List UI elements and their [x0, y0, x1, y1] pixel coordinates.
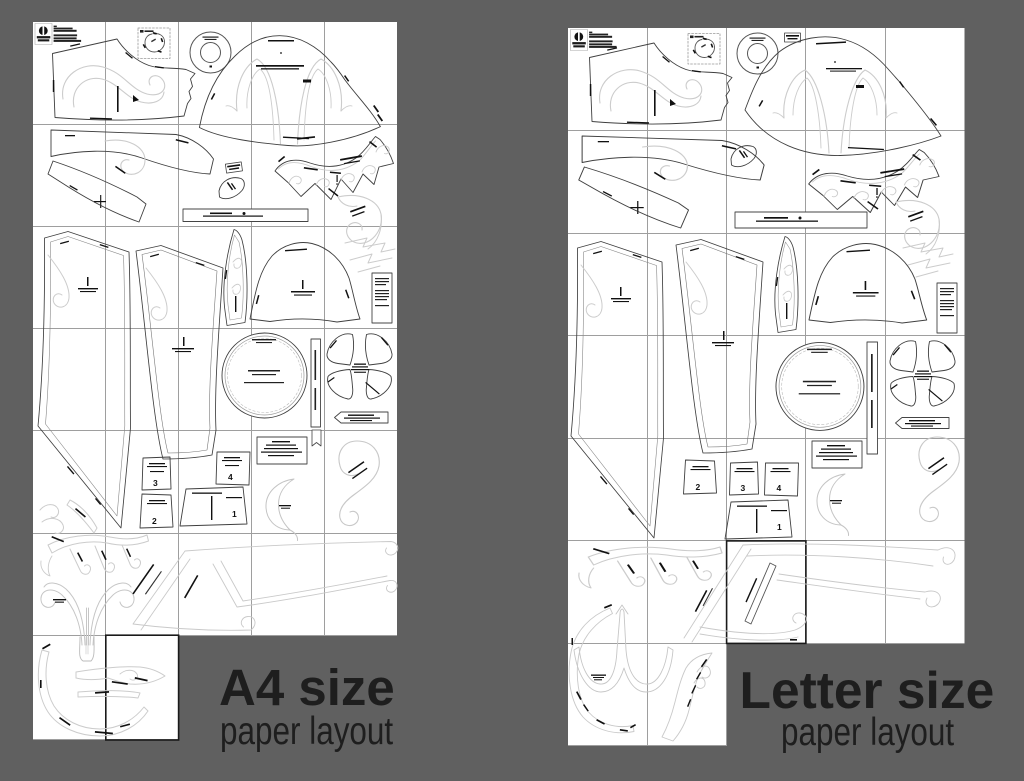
- svg-text:paper layout: paper layout: [220, 709, 393, 753]
- svg-text:3: 3: [741, 483, 746, 493]
- svg-text:4: 4: [777, 483, 782, 493]
- svg-text:1: 1: [777, 522, 782, 532]
- svg-text:paper layout: paper layout: [781, 710, 954, 754]
- svg-text:A4 size: A4 size: [219, 659, 395, 716]
- svg-text:2: 2: [696, 482, 701, 492]
